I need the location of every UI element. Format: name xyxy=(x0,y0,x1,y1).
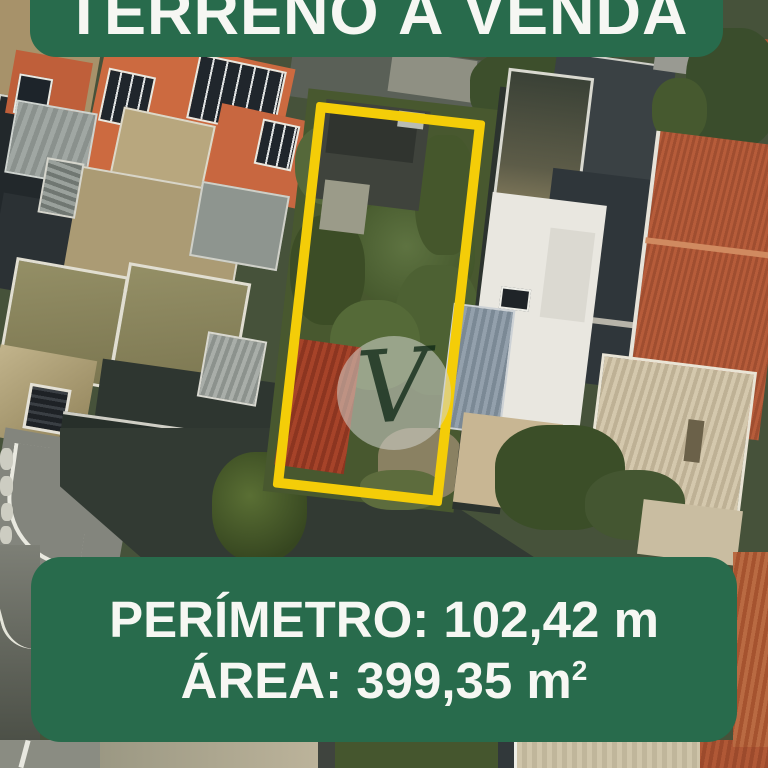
watermark-badge: V xyxy=(337,336,451,450)
listing-image: V TERRENO À VENDA PERÍMETRO: 102,42 m ÁR… xyxy=(0,0,768,768)
beige-roof-bottom-strip xyxy=(514,740,707,768)
road-bottom-strip xyxy=(0,740,105,768)
tan-roof-bottom xyxy=(100,740,325,768)
parked-car-3 xyxy=(1,503,13,521)
listing-title: TERRENO À VENDA xyxy=(30,0,723,45)
top-banner: TERRENO À VENDA xyxy=(30,0,723,57)
parked-car-4 xyxy=(0,526,12,544)
striped-roof-small xyxy=(197,331,268,406)
gray-roof-patch xyxy=(189,181,290,271)
bottom-banner: PERÍMETRO: 102,42 m ÁREA: 399,35 m2 xyxy=(31,557,737,742)
parked-car-1 xyxy=(0,448,13,470)
parked-car-2 xyxy=(0,476,13,496)
perimeter-text: PERÍMETRO: 102,42 m xyxy=(109,594,659,645)
area-value: ÁREA: 399,35 m xyxy=(181,652,572,709)
watermark-v-logo: V xyxy=(354,335,433,440)
orange-tiles-right-of-banner xyxy=(733,552,768,747)
area-superscript: 2 xyxy=(572,655,588,686)
trees-bottom-strip xyxy=(335,740,505,768)
area-text: ÁREA: 399,35 m2 xyxy=(181,655,588,706)
